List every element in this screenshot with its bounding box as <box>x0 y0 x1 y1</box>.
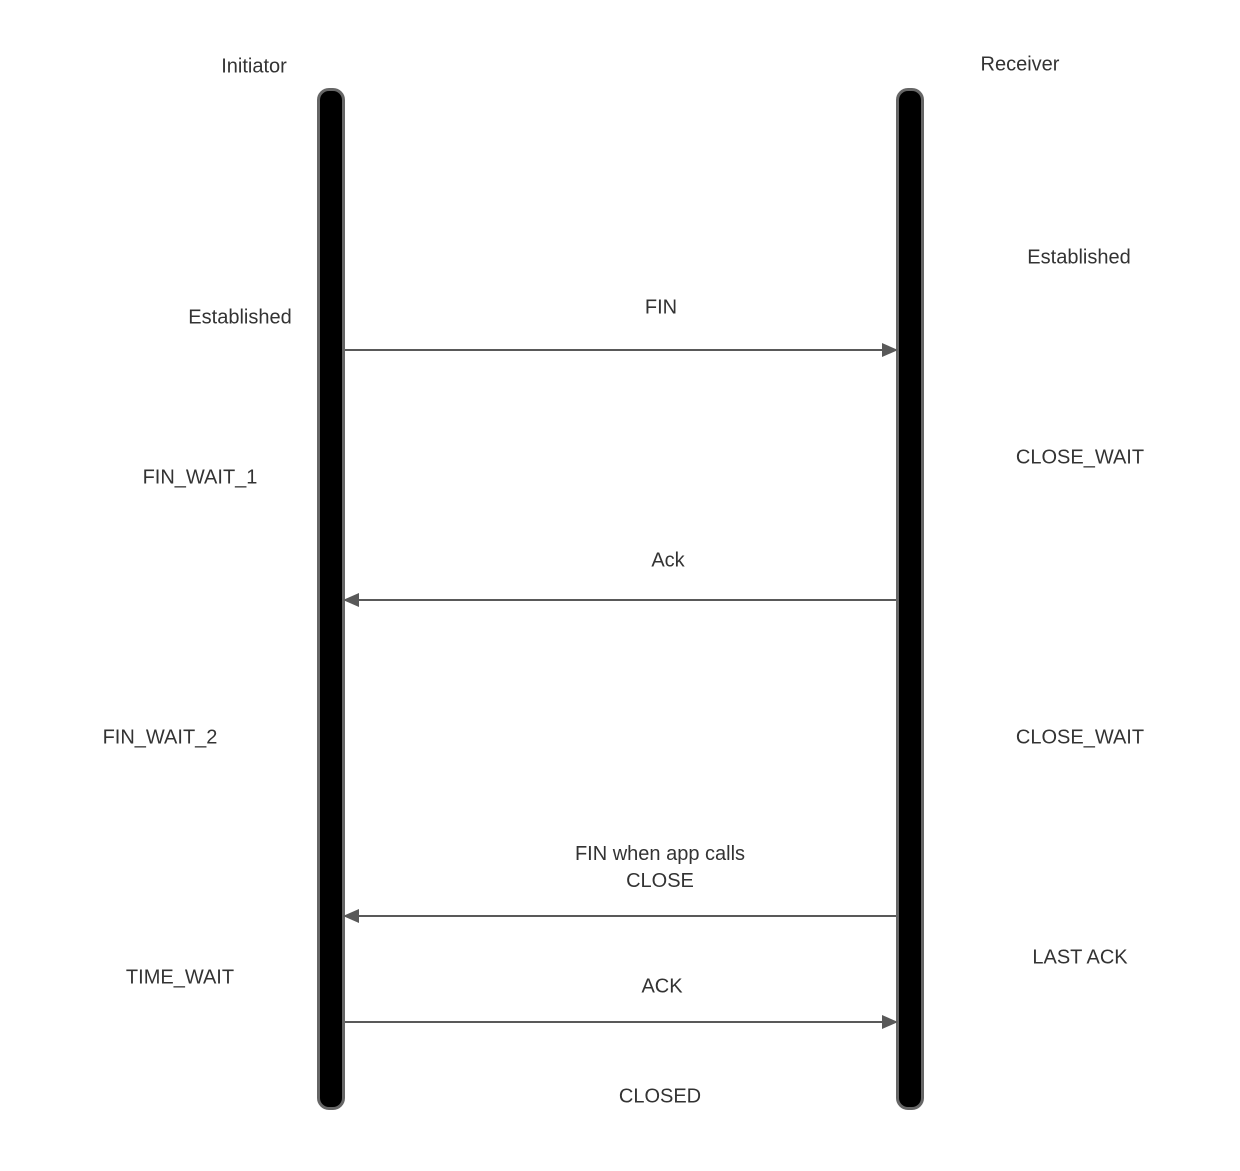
state-label-initiator-fin-wait-2: FIN_WAIT_2 <box>103 725 218 752</box>
state-label-initiator-time-wait: TIME_WAIT <box>126 965 234 992</box>
final-state-label-closed: CLOSED <box>619 1084 701 1111</box>
message-arrow-ack-final <box>345 1021 896 1023</box>
tcp-termination-sequence-diagram: Initiator Receiver FIN Ack FIN when app … <box>0 0 1240 1171</box>
state-label-receiver-close-wait-2: CLOSE_WAIT <box>1016 725 1144 752</box>
lifeline-receiver <box>896 88 924 1110</box>
message-arrow-fin <box>345 349 896 351</box>
state-label-initiator-established: Established <box>188 305 291 332</box>
state-label-initiator-fin-wait-1: FIN_WAIT_1 <box>143 465 258 492</box>
arrowhead-left-icon <box>343 909 359 923</box>
arrowhead-right-icon <box>882 343 898 357</box>
actor-label-receiver: Receiver <box>981 52 1060 79</box>
actor-label-initiator: Initiator <box>221 54 287 81</box>
state-label-receiver-established: Established <box>1027 245 1130 272</box>
state-label-receiver-last-ack: LAST ACK <box>1032 945 1127 972</box>
arrowhead-left-icon <box>343 593 359 607</box>
message-label-ack: Ack <box>651 548 684 575</box>
lifeline-initiator <box>317 88 345 1110</box>
message-label-fin-close: FIN when app calls CLOSE <box>575 841 745 895</box>
message-label-ack-final: ACK <box>641 974 682 1001</box>
message-arrow-fin-close <box>345 915 896 917</box>
message-label-fin: FIN <box>645 295 677 322</box>
arrowhead-right-icon <box>882 1015 898 1029</box>
message-arrow-ack <box>345 599 896 601</box>
state-label-receiver-close-wait-1: CLOSE_WAIT <box>1016 445 1144 472</box>
